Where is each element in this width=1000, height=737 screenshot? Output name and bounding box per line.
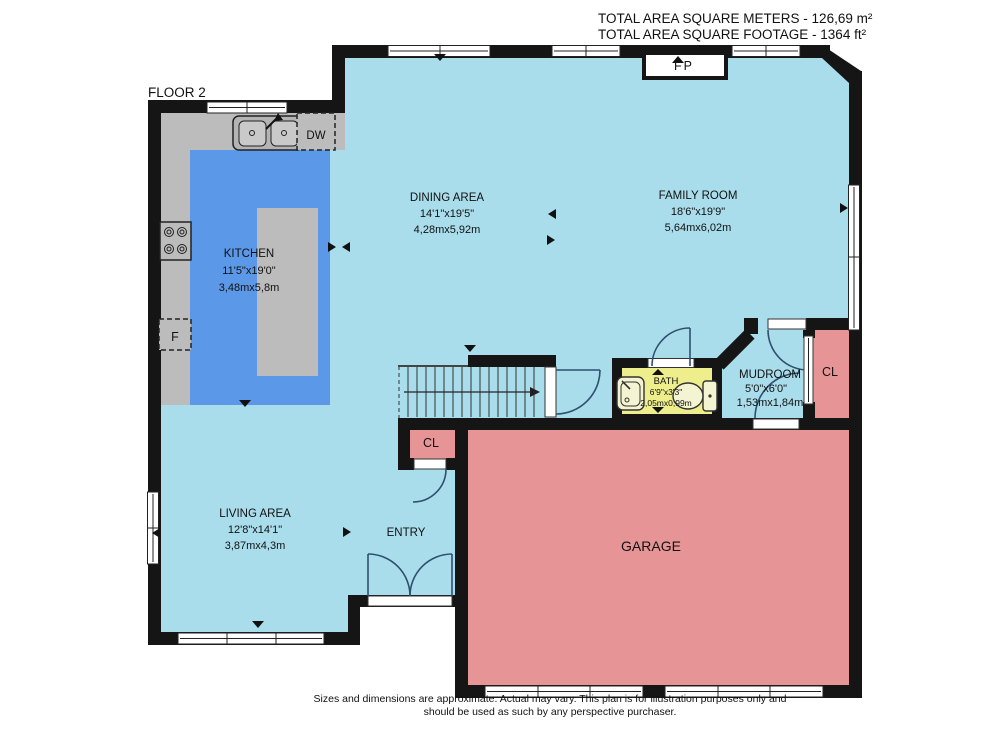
- bath-dims-m: 2,05mx0,99m: [640, 398, 692, 408]
- kitchen-sink-icon: [233, 113, 303, 150]
- garage-label: GARAGE: [621, 538, 681, 554]
- mudroom-closet-label: CL: [822, 365, 838, 379]
- family-room-label: FAMILY ROOM: [659, 190, 738, 202]
- bath-dims-ft: 6'9"x3'3": [650, 387, 682, 397]
- disclaimer-line2: should be used as such by any perspectiv…: [424, 706, 677, 718]
- dining-area-dims-ft: 14'1"x19'5": [420, 208, 474, 220]
- living-area-dims-ft: 12'8"x14'1": [228, 524, 282, 536]
- fridge-label: F: [171, 330, 179, 344]
- kitchen-dims-m: 3,48mx5,8m: [219, 282, 280, 294]
- window: [552, 46, 620, 57]
- entry-label: ENTRY: [387, 527, 426, 539]
- family-room-dims-m: 5,64mx6,02m: [665, 222, 732, 234]
- entry-closet-label: CL: [423, 436, 439, 450]
- dishwasher-label: DW: [306, 130, 325, 142]
- family-room-dims-ft: 18'6"x19'9": [671, 206, 725, 218]
- kitchen-dims-ft: 11'5"x19'0": [222, 265, 275, 277]
- family-room-window: [849, 185, 860, 330]
- window: [732, 46, 800, 57]
- total-area-ft2: TOTAL AREA SQUARE FOOTAGE - 1364 ft²: [598, 27, 867, 42]
- kitchen-label: KITCHEN: [224, 248, 274, 260]
- dining-area-label: DINING AREA: [410, 192, 484, 204]
- living-area-label: LIVING AREA: [219, 508, 291, 520]
- mudroom-closet-slider: [804, 336, 813, 404]
- floor-plan: TOTAL AREA SQUARE METERS - 126,69 m² TOT…: [0, 0, 1000, 737]
- total-area-m2: TOTAL AREA SQUARE METERS - 126,69 m²: [598, 11, 873, 26]
- stove-icon: [160, 222, 191, 260]
- living-area-front-window: [178, 633, 324, 644]
- bath-label: BATH: [654, 376, 679, 387]
- mudroom-dims-m: 1,53mx1,84m: [737, 397, 804, 409]
- floor-label: FLOOR 2: [148, 85, 206, 100]
- fireplace-label: FP: [674, 59, 694, 73]
- kitchen-window: [207, 102, 287, 113]
- living-area-dims-m: 3,87mx4,3m: [225, 540, 286, 552]
- living-area-side-window: [148, 492, 159, 564]
- mudroom-label: MUDROOM: [739, 369, 801, 381]
- mudroom-dims-ft: 5'0"x6'0": [745, 383, 787, 395]
- dining-area-dims-m: 4,28mx5,92m: [414, 224, 481, 236]
- floor-plan-page: TOTAL AREA SQUARE METERS - 126,69 m² TOT…: [0, 0, 1000, 737]
- garage-floor: [461, 424, 856, 692]
- disclaimer-line1: Sizes and dimensions are approximate. Ac…: [314, 693, 787, 705]
